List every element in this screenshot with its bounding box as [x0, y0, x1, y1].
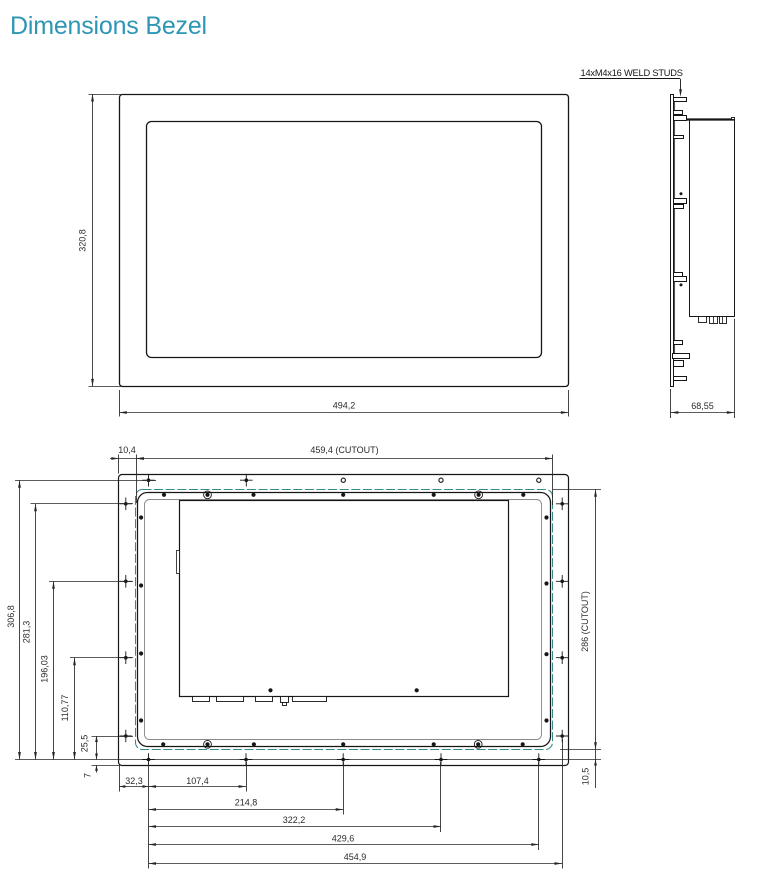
- svg-text:14xM4x16 WELD STUDS: 14xM4x16 WELD STUDS: [581, 68, 683, 78]
- svg-text:107,4: 107,4: [186, 776, 209, 786]
- svg-text:32,3: 32,3: [125, 776, 143, 786]
- svg-text:10,4: 10,4: [118, 445, 136, 455]
- svg-text:322,2: 322,2: [283, 815, 306, 825]
- svg-text:494,2: 494,2: [333, 401, 356, 411]
- svg-text:68,55: 68,55: [691, 401, 714, 411]
- svg-text:454,9: 454,9: [344, 852, 367, 862]
- svg-text:Dimensions Bezel: Dimensions Bezel: [10, 12, 207, 40]
- svg-text:196,03: 196,03: [40, 655, 50, 683]
- svg-text:10,5: 10,5: [581, 768, 591, 786]
- svg-text:7: 7: [82, 773, 92, 778]
- svg-text:459,4 (CUTOUT): 459,4 (CUTOUT): [310, 445, 378, 455]
- svg-text:429,6: 429,6: [332, 834, 355, 844]
- svg-text:25,5: 25,5: [79, 735, 89, 753]
- svg-text:110,77: 110,77: [60, 695, 70, 722]
- svg-text:286 (CUTOUT): 286 (CUTOUT): [580, 591, 590, 652]
- svg-text:281,3: 281,3: [21, 621, 31, 644]
- svg-text:306,8: 306,8: [6, 605, 16, 628]
- svg-text:214,8: 214,8: [235, 798, 258, 808]
- svg-text:320,8: 320,8: [78, 229, 88, 252]
